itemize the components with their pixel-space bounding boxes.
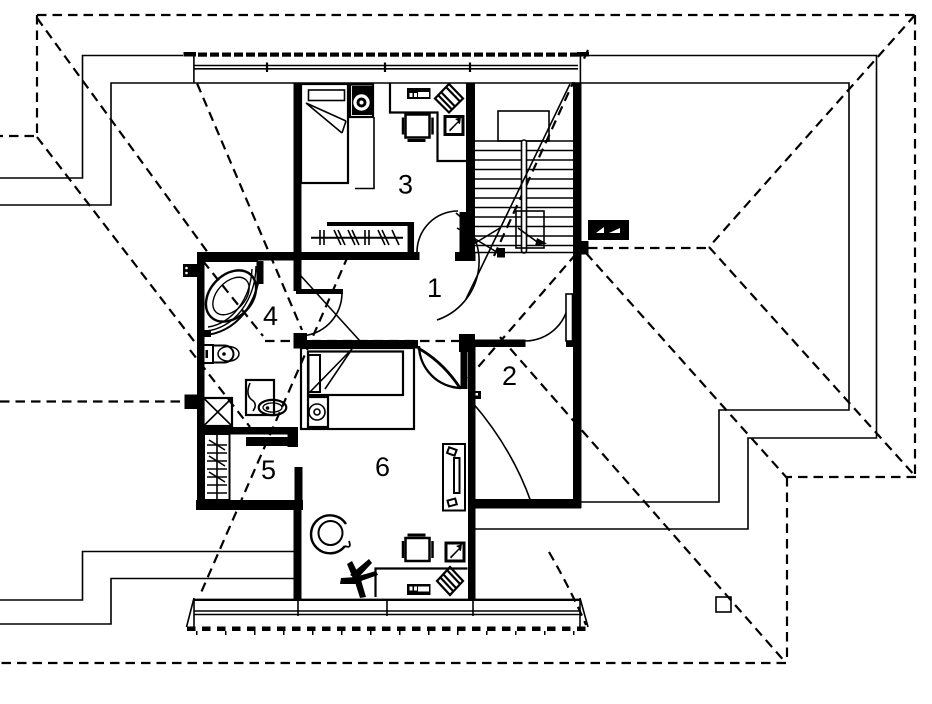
svg-text:1: 1 — [427, 273, 442, 303]
svg-text:4: 4 — [263, 301, 278, 331]
svg-text:5: 5 — [261, 455, 276, 485]
svg-text:3: 3 — [398, 170, 413, 200]
svg-text:6: 6 — [375, 452, 390, 482]
svg-text:2: 2 — [502, 361, 517, 391]
